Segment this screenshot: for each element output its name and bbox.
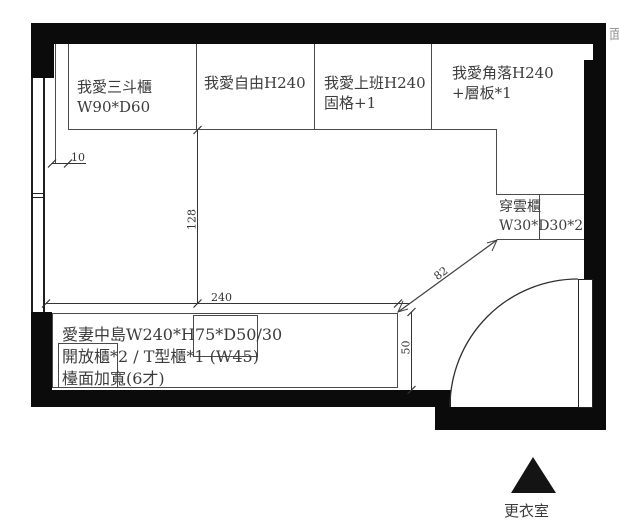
cabinet-label-shangban: 我愛上班H240 固格+1 [324, 73, 426, 113]
dim-label-128: 128 [186, 207, 199, 233]
cabinet-label-sandou: 我愛三斗櫃 W90*D60 [77, 77, 152, 117]
dim-label-240: 240 [211, 291, 232, 304]
cabinet-label-sandou-line1: 我愛三斗櫃 [77, 77, 152, 97]
cabinet-label-jiaoluo-line2: +層板*1 [452, 83, 554, 103]
island-label: 愛妻中島W240*H75*D50/30 開放櫃*2 / T型櫃*1 (W45) … [62, 324, 282, 390]
cabinet-label-chuanyun: 穿雲櫃 W30*D30*2 [499, 198, 583, 236]
cabinet-label-chuanyun-line2: W30*D30*2 [499, 217, 583, 236]
cabinet-label-sandou-line2: W90*D60 [77, 97, 152, 117]
island-label-line1: 愛妻中島W240*H75*D50/30 [62, 324, 282, 346]
edge-clipped-glyph: 面 [609, 24, 619, 44]
dim-label-10: 10 [71, 151, 85, 164]
island-label-line2: 開放櫃*2 / T型櫃*1 (W45) [62, 346, 282, 368]
island-label-line3: 檯面加寬(6才) [62, 368, 282, 390]
cabinet-label-chuanyun-line1: 穿雲櫃 [499, 198, 583, 217]
dim-label-50: 50 [400, 338, 413, 358]
cabinet-label-shangban-line1: 我愛上班H240 [324, 73, 426, 93]
door-swing-arc [450, 279, 578, 407]
cabinet-label-jiaoluo-line1: 我愛角落H240 [452, 63, 554, 83]
floor-plan: 我愛三斗櫃 W90*D60 我愛自由H240 我愛上班H240 固格+1 我愛角… [0, 0, 619, 527]
room-label-dressing: 更衣室 [504, 500, 549, 521]
cabinet-label-shangban-line2: 固格+1 [324, 93, 426, 113]
dressing-room-marker-triangle [511, 457, 556, 493]
cabinet-label-ziyou-line1: 我愛自由H240 [204, 73, 306, 93]
cabinet-label-jiaoluo: 我愛角落H240 +層板*1 [452, 63, 554, 103]
cabinet-label-ziyou: 我愛自由H240 [204, 73, 306, 93]
